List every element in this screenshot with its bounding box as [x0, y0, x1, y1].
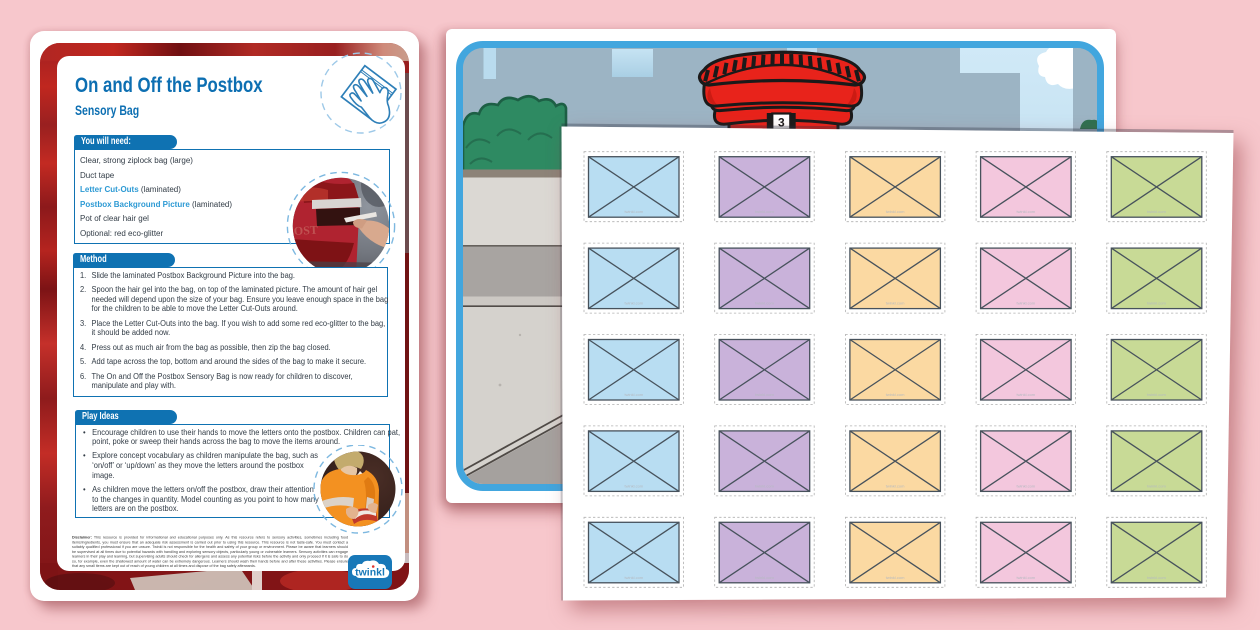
svg-text:twinkl.com: twinkl.com — [755, 483, 774, 488]
svg-text:twinkl.com: twinkl.com — [1147, 392, 1166, 397]
svg-text:twinkl.com: twinkl.com — [1147, 575, 1166, 580]
svg-text:twinkl.com: twinkl.com — [624, 301, 643, 306]
svg-text:twinkl: twinkl — [355, 567, 385, 579]
svg-text:twinkl.com: twinkl.com — [755, 209, 774, 214]
svg-text:twinkl.com: twinkl.com — [624, 209, 643, 214]
svg-text:twinkl.com: twinkl.com — [886, 209, 905, 214]
svg-text:twinkl.com: twinkl.com — [755, 392, 774, 397]
svg-text:twinkl.com: twinkl.com — [624, 392, 643, 397]
svg-text:twinkl.com: twinkl.com — [624, 483, 643, 488]
svg-text:twinkl.com: twinkl.com — [1016, 575, 1035, 580]
svg-text:twinkl.com: twinkl.com — [886, 575, 905, 580]
svg-text:twinkl.com: twinkl.com — [886, 301, 905, 306]
svg-text:twinkl.com: twinkl.com — [1147, 301, 1166, 306]
svg-text:twinkl.com: twinkl.com — [886, 392, 905, 397]
svg-text:twinkl.com: twinkl.com — [1016, 392, 1035, 397]
svg-text:twinkl.com: twinkl.com — [1016, 483, 1035, 488]
svg-text:twinkl.com: twinkl.com — [755, 575, 774, 580]
svg-text:twinkl.com: twinkl.com — [624, 575, 643, 580]
svg-text:OST: OST — [293, 223, 318, 238]
svg-text:twinkl.com: twinkl.com — [886, 483, 905, 488]
svg-text:twinkl.com: twinkl.com — [755, 301, 774, 306]
svg-text:twinkl.com: twinkl.com — [1016, 301, 1035, 306]
svg-text:twinkl.com: twinkl.com — [1147, 483, 1166, 488]
svg-text:twinkl.com: twinkl.com — [1147, 209, 1166, 214]
svg-text:twinkl.com: twinkl.com — [1016, 209, 1035, 214]
